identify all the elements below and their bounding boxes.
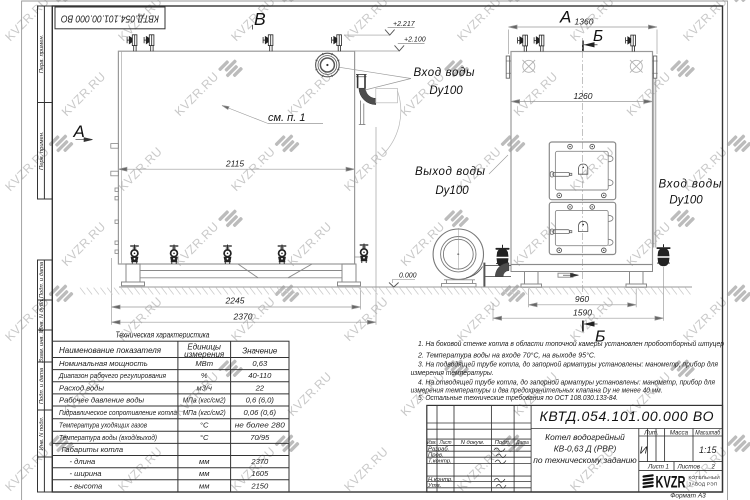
svg-text:Перв. примен.: Перв. примен.: [39, 131, 45, 170]
svg-text:KVZR.RU: KVZR.RU: [172, 69, 222, 119]
svg-text:°С: °С: [200, 433, 209, 442]
svg-text:KVZR.RU: KVZR.RU: [511, 219, 561, 269]
svg-text:Взам. инв. N: Взам. инв. N: [39, 328, 45, 363]
svg-text:KVZR.RU: KVZR.RU: [511, 69, 561, 119]
svg-text:960: 960: [575, 294, 589, 304]
svg-text:Dy100: Dy100: [435, 185, 469, 197]
svg-text:Масштаб: Масштаб: [695, 429, 720, 436]
svg-text:Инв. N подл.: Инв. N подл.: [39, 417, 45, 451]
svg-text:+2.217: +2.217: [393, 21, 416, 28]
svg-text:Вход воды: Вход воды: [659, 179, 723, 191]
svg-text:2. Температура воды на входе: 2. Температура воды на входе 70°С, на вы…: [417, 350, 596, 359]
svg-text:Б: Б: [593, 28, 603, 45]
svg-text:0,63: 0,63: [252, 359, 268, 368]
svg-text:Dy100: Dy100: [429, 85, 463, 97]
svg-text:мм: мм: [199, 481, 210, 490]
svg-text:Подп. и дата: Подп. и дата: [39, 261, 45, 298]
svg-text:м3/ч: м3/ч: [196, 383, 212, 392]
svg-text:Техническая характеристика: Техническая характеристика: [116, 331, 210, 340]
svg-text:Наименование показателя: Наименование показателя: [59, 346, 162, 355]
svg-text:Выход воды: Выход воды: [415, 166, 486, 178]
svg-text:Вход воды: Вход воды: [414, 67, 476, 79]
svg-text:22: 22: [255, 383, 265, 392]
svg-text:Инв. N дубл.: Инв. N дубл.: [39, 298, 45, 332]
svg-text:%: %: [201, 371, 208, 380]
svg-text:Листов: Листов: [677, 464, 701, 471]
svg-text:+2.100: +2.100: [404, 37, 426, 44]
svg-text:Гидравлическое сопротивление к: Гидравлическое сопротивление котла: [59, 408, 177, 417]
svg-text:KVZR.RU: KVZR.RU: [285, 219, 335, 269]
svg-text:1590: 1590: [573, 308, 592, 318]
svg-text:- длина: - длина: [70, 457, 96, 466]
svg-text:2: 2: [711, 464, 716, 471]
svg-text:см. п. 1: см. п. 1: [268, 112, 305, 124]
svg-text:Дата: Дата: [515, 440, 529, 446]
svg-text:Температура воды (вход/выход): Температура воды (вход/выход): [59, 433, 157, 442]
svg-text:не более 280: не более 280: [235, 421, 286, 430]
svg-text:А: А: [73, 122, 85, 141]
svg-text:А: А: [559, 7, 571, 26]
svg-text:КВТД.054.101.00.000 ВО: КВТД.054.101.00.000 ВО: [61, 12, 159, 23]
svg-text:1:15: 1:15: [699, 445, 718, 455]
svg-text:И: И: [640, 445, 648, 457]
svg-text:2150: 2150: [250, 481, 269, 490]
svg-text:KVZR.RU: KVZR.RU: [59, 69, 109, 119]
svg-text:Температура уходящих газов: Температура уходящих газов: [59, 421, 147, 430]
svg-text:1: 1: [666, 464, 669, 471]
svg-text:N докум.: N докум.: [461, 440, 485, 446]
svg-text:Лист: Лист: [439, 440, 452, 446]
svg-text:2370: 2370: [250, 457, 269, 466]
svg-text:Значение: Значение: [242, 347, 278, 356]
svg-text:Т.контр.: Т.контр.: [428, 459, 452, 465]
svg-text:Масса: Масса: [670, 429, 689, 436]
svg-text:°С: °С: [200, 421, 209, 430]
svg-text:KVZR.RU: KVZR.RU: [398, 219, 448, 269]
svg-text:Номинальная мощность: Номинальная мощность: [59, 359, 148, 368]
svg-text:0,6 (6,0): 0,6 (6,0): [246, 395, 275, 404]
svg-text:МПа (кгс/см2): МПа (кгс/см2): [183, 395, 226, 404]
svg-text:KVZR.RU: KVZR.RU: [624, 69, 674, 119]
svg-text:Утв.: Утв.: [427, 483, 441, 489]
svg-text:Формат А3: Формат А3: [670, 493, 706, 500]
svg-text:- высота: - высота: [70, 481, 103, 490]
svg-text:МПа (кгс/см2): МПа (кгс/см2): [183, 408, 226, 417]
svg-text:0.000: 0.000: [399, 272, 417, 279]
svg-text:В: В: [254, 9, 266, 29]
svg-text:0,06 (0,6): 0,06 (0,6): [244, 408, 277, 417]
svg-text:Подп.: Подп.: [495, 440, 511, 446]
svg-text:Расход воды: Расход воды: [59, 383, 104, 392]
svg-text:Н.контр.: Н.контр.: [428, 477, 453, 483]
svg-text:КОТЕЛЬНЫЙ: КОТЕЛЬНЫЙ: [689, 473, 720, 480]
svg-text:мм: мм: [199, 457, 210, 466]
svg-text:Пров.: Пров.: [428, 452, 444, 458]
svg-text:KVZR.RU: KVZR.RU: [567, 144, 617, 194]
svg-text:5. Остальные технические треб: 5. Остальные технические требования по О…: [418, 393, 618, 402]
svg-text:Котел водогрейный: Котел водогрейный: [545, 432, 625, 442]
svg-text:1260: 1260: [574, 91, 593, 101]
svg-text:измерения: измерения: [184, 350, 225, 359]
svg-text:KVZR.RU: KVZR.RU: [59, 219, 109, 269]
svg-text:Лит.: Лит.: [643, 429, 659, 436]
svg-text:2245: 2245: [225, 296, 245, 306]
svg-text:KVZR.RU: KVZR.RU: [285, 369, 335, 419]
svg-text:Рабочее давление воды: Рабочее давление воды: [59, 395, 145, 404]
svg-text:Диапазон рабочего регулировани: Диапазон рабочего регулирования: [58, 371, 166, 380]
svg-text:2115: 2115: [225, 159, 245, 169]
svg-text:по техническому заданию: по техническому заданию: [533, 455, 637, 465]
svg-text:измерения температуры.: измерения температуры.: [411, 368, 494, 377]
svg-text:KVZR.RU: KVZR.RU: [454, 444, 504, 494]
svg-text:KVZR.RU: KVZR.RU: [341, 294, 391, 344]
svg-text:KVZR.RU: KVZR.RU: [341, 444, 391, 494]
svg-text:КВ-0,63 Д (РВР): КВ-0,63 Д (РВР): [554, 444, 617, 454]
svg-text:Подп. и дата: Подп. и дата: [39, 367, 45, 404]
svg-text:1. На боковой стенке котла в: 1. На боковой стенке котла в области топ…: [418, 339, 724, 348]
svg-text:1360: 1360: [575, 17, 594, 27]
svg-text:KVZR: KVZR: [656, 474, 686, 492]
svg-text:МВт: МВт: [195, 359, 213, 368]
svg-text:Dy100: Dy100: [669, 195, 703, 207]
svg-text:70/95: 70/95: [250, 433, 270, 442]
svg-text:KVZR.RU: KVZR.RU: [172, 219, 222, 269]
svg-text:1605: 1605: [251, 469, 269, 478]
svg-text:Перв. примен.: Перв. примен.: [39, 35, 45, 74]
svg-text:- ширина: - ширина: [70, 469, 102, 478]
svg-text:Изм.: Изм.: [427, 440, 436, 446]
svg-text:КВТД.054.101.00.000 ВО: КВТД.054.101.00.000 ВО: [540, 408, 714, 424]
svg-text:2370: 2370: [233, 311, 253, 321]
svg-text:40-110: 40-110: [248, 371, 272, 380]
svg-text:ЗАВОД РЭП: ЗАВОД РЭП: [689, 482, 718, 487]
svg-text:мм: мм: [199, 469, 210, 478]
svg-text:Габариты котла: Габариты котла: [62, 445, 124, 454]
svg-text:Лист: Лист: [647, 464, 664, 471]
